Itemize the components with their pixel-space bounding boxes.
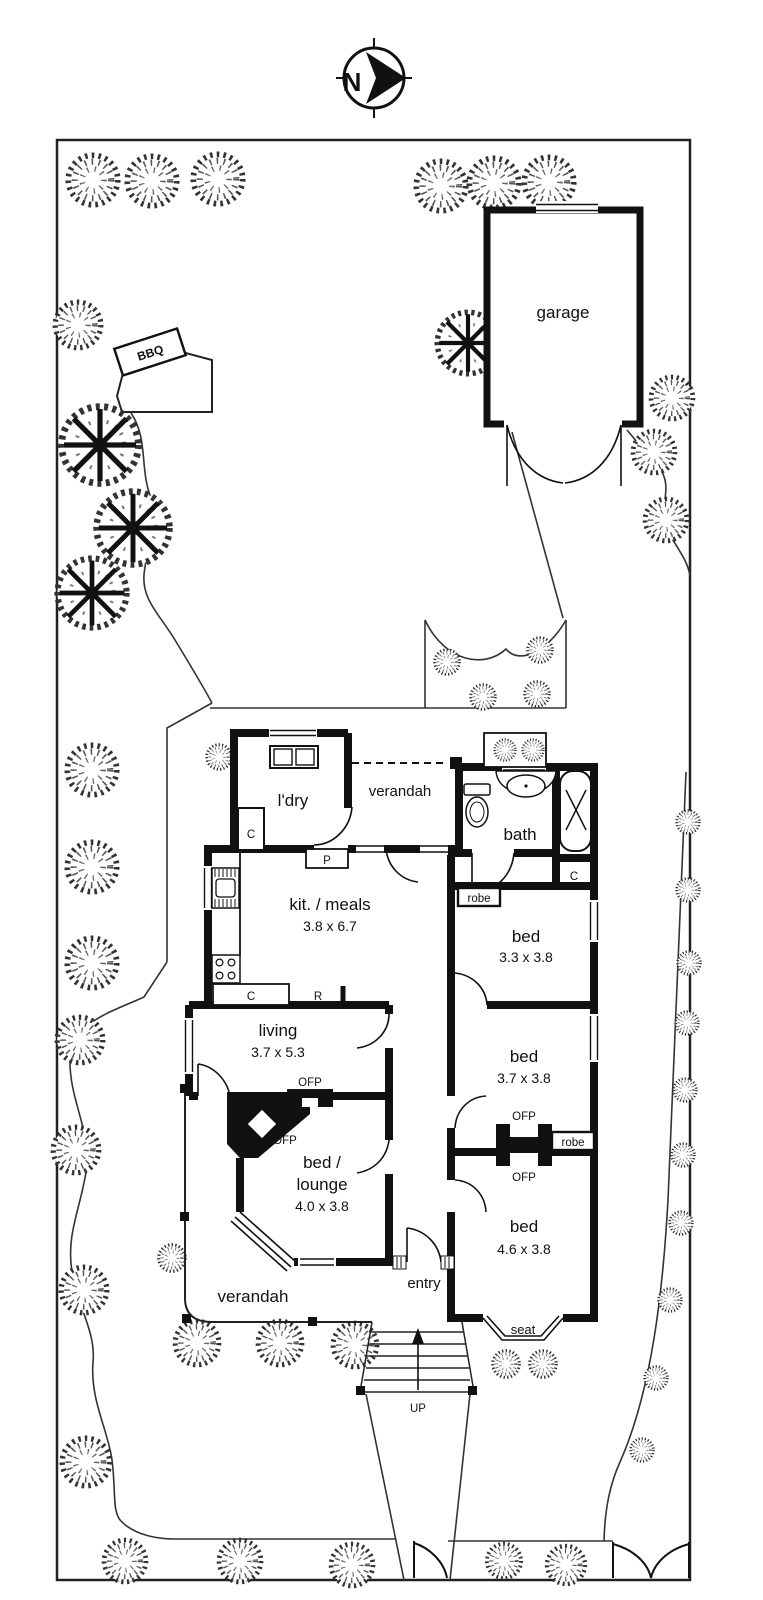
shrub-icon xyxy=(547,1546,585,1584)
shrub-icon xyxy=(677,879,700,902)
shrub-icon xyxy=(633,431,675,473)
bathtub-icon xyxy=(560,771,591,851)
stair-post-icon xyxy=(468,1386,477,1395)
verandah-post-icon xyxy=(308,1317,317,1326)
bed2-window-icon xyxy=(588,1014,600,1062)
bath-label: bath xyxy=(503,825,536,844)
bed3-label: bed xyxy=(510,1217,538,1236)
toilet-icon xyxy=(464,784,490,827)
garage-label: garage xyxy=(537,303,590,322)
shrub-icon xyxy=(677,811,700,834)
kitchen-cupboard: C xyxy=(213,984,289,1005)
entry-label: entry xyxy=(407,1275,441,1292)
shrub-icon xyxy=(631,1439,654,1462)
compass-north-label: N xyxy=(343,67,362,97)
shrub-icon xyxy=(55,302,101,348)
shrub-icon xyxy=(651,377,693,419)
living-window-icon xyxy=(183,1018,195,1074)
shrub-icon xyxy=(416,161,465,210)
living-dims: 3.7 x 5.3 xyxy=(251,1044,305,1060)
pantry-label: P xyxy=(323,855,331,867)
shrub-icon xyxy=(672,1144,695,1167)
robe-bed1: robe xyxy=(458,888,500,906)
shrub-icon xyxy=(67,938,116,987)
bed1-dims: 3.3 x 3.8 xyxy=(499,949,553,965)
shrub-icon xyxy=(435,650,460,675)
pantry: P xyxy=(306,849,348,868)
verandah-post-icon xyxy=(450,757,462,769)
bedlounge-window-icon xyxy=(298,1256,336,1268)
garage-window-icon xyxy=(536,201,598,213)
shrub-icon xyxy=(159,1245,186,1272)
cupboard-label: C xyxy=(570,871,578,883)
shrub-icon xyxy=(495,740,516,761)
shrub-icon xyxy=(469,158,518,207)
shrub-icon xyxy=(331,1544,373,1586)
living-label: living xyxy=(259,1021,298,1040)
bed3-dims: 4.6 x 3.8 xyxy=(497,1241,551,1257)
verandah-bottom-label: verandah xyxy=(218,1287,289,1306)
stove-icon xyxy=(212,955,240,983)
shrub-icon xyxy=(104,1540,146,1582)
shrub-icon xyxy=(678,952,701,975)
laundry-label: l'dry xyxy=(278,791,309,810)
up-label: UP xyxy=(410,1403,426,1415)
shrub-icon xyxy=(645,499,687,541)
seat-label: seat xyxy=(511,1322,536,1337)
ofp-label: OFP xyxy=(273,1135,297,1147)
shrub-icon xyxy=(67,842,116,891)
shrub-icon xyxy=(528,638,553,663)
bed2-dims: 3.7 x 3.8 xyxy=(497,1070,551,1086)
bedlounge-dims: 4.0 x 3.8 xyxy=(295,1198,349,1214)
shrub-icon xyxy=(674,1079,697,1102)
shrub-icon xyxy=(62,1438,110,1486)
ofp-label: OFP xyxy=(512,1172,536,1184)
shrub-icon xyxy=(676,1012,699,1035)
shrub-icon xyxy=(57,1017,103,1063)
shrub-icon xyxy=(68,155,117,204)
robe-label: robe xyxy=(467,893,490,905)
shrub-icon xyxy=(53,1127,99,1173)
shrub-icon xyxy=(493,1351,520,1378)
verandah-post-icon xyxy=(180,1212,189,1221)
kitchen-sink-icon xyxy=(212,868,239,908)
shrub-icon xyxy=(659,1289,682,1312)
shrub-icon xyxy=(523,740,544,761)
bed1-label: bed xyxy=(512,927,540,946)
tree-icon xyxy=(62,407,139,484)
verandah-post-icon xyxy=(180,1084,189,1093)
shrub-icon xyxy=(524,157,573,206)
shrub-icon xyxy=(175,1321,219,1365)
shrub-icon xyxy=(67,745,116,794)
north-compass: N xyxy=(336,38,412,118)
floor-plan-svg: N xyxy=(0,0,763,1600)
verandah-post-icon xyxy=(182,1314,191,1323)
bed2-label: bed xyxy=(510,1047,538,1066)
shrub-icon xyxy=(525,682,550,707)
shrub-icon xyxy=(258,1321,302,1365)
bedlounge-label-1: bed / xyxy=(303,1153,341,1172)
shrub-icon xyxy=(645,1367,668,1390)
shrub-icon xyxy=(61,1267,107,1313)
shrub-icon xyxy=(219,1540,261,1582)
shrub-icon xyxy=(207,745,232,770)
bedlounge-label-2: lounge xyxy=(296,1175,347,1194)
kitchen-meals-label: kit. / meals xyxy=(289,895,370,914)
laundry-window-icon xyxy=(269,728,317,738)
shrub-icon xyxy=(193,154,242,203)
kitchen-meals-dims: 3.8 x 6.7 xyxy=(303,918,357,934)
shrub-icon xyxy=(127,156,176,205)
shrub-icon xyxy=(471,685,496,710)
robe-bed2: robe xyxy=(552,1132,594,1150)
bed1-window-icon xyxy=(588,900,600,942)
tree-icon xyxy=(57,558,126,627)
ofp-label: OFP xyxy=(512,1111,536,1123)
stair-post-icon xyxy=(356,1386,365,1395)
shrub-icon xyxy=(670,1212,693,1235)
cupboard-label: C xyxy=(247,991,255,1003)
shrub-icon xyxy=(530,1351,557,1378)
verandah-top-label: verandah xyxy=(369,783,432,800)
tree-icon xyxy=(97,492,170,565)
cupboard-label: C xyxy=(247,829,255,841)
ofp-label: OFP xyxy=(298,1077,322,1089)
shrub-icon xyxy=(487,1544,521,1578)
fridge-label: R xyxy=(314,991,322,1003)
robe-label: robe xyxy=(561,1137,584,1149)
